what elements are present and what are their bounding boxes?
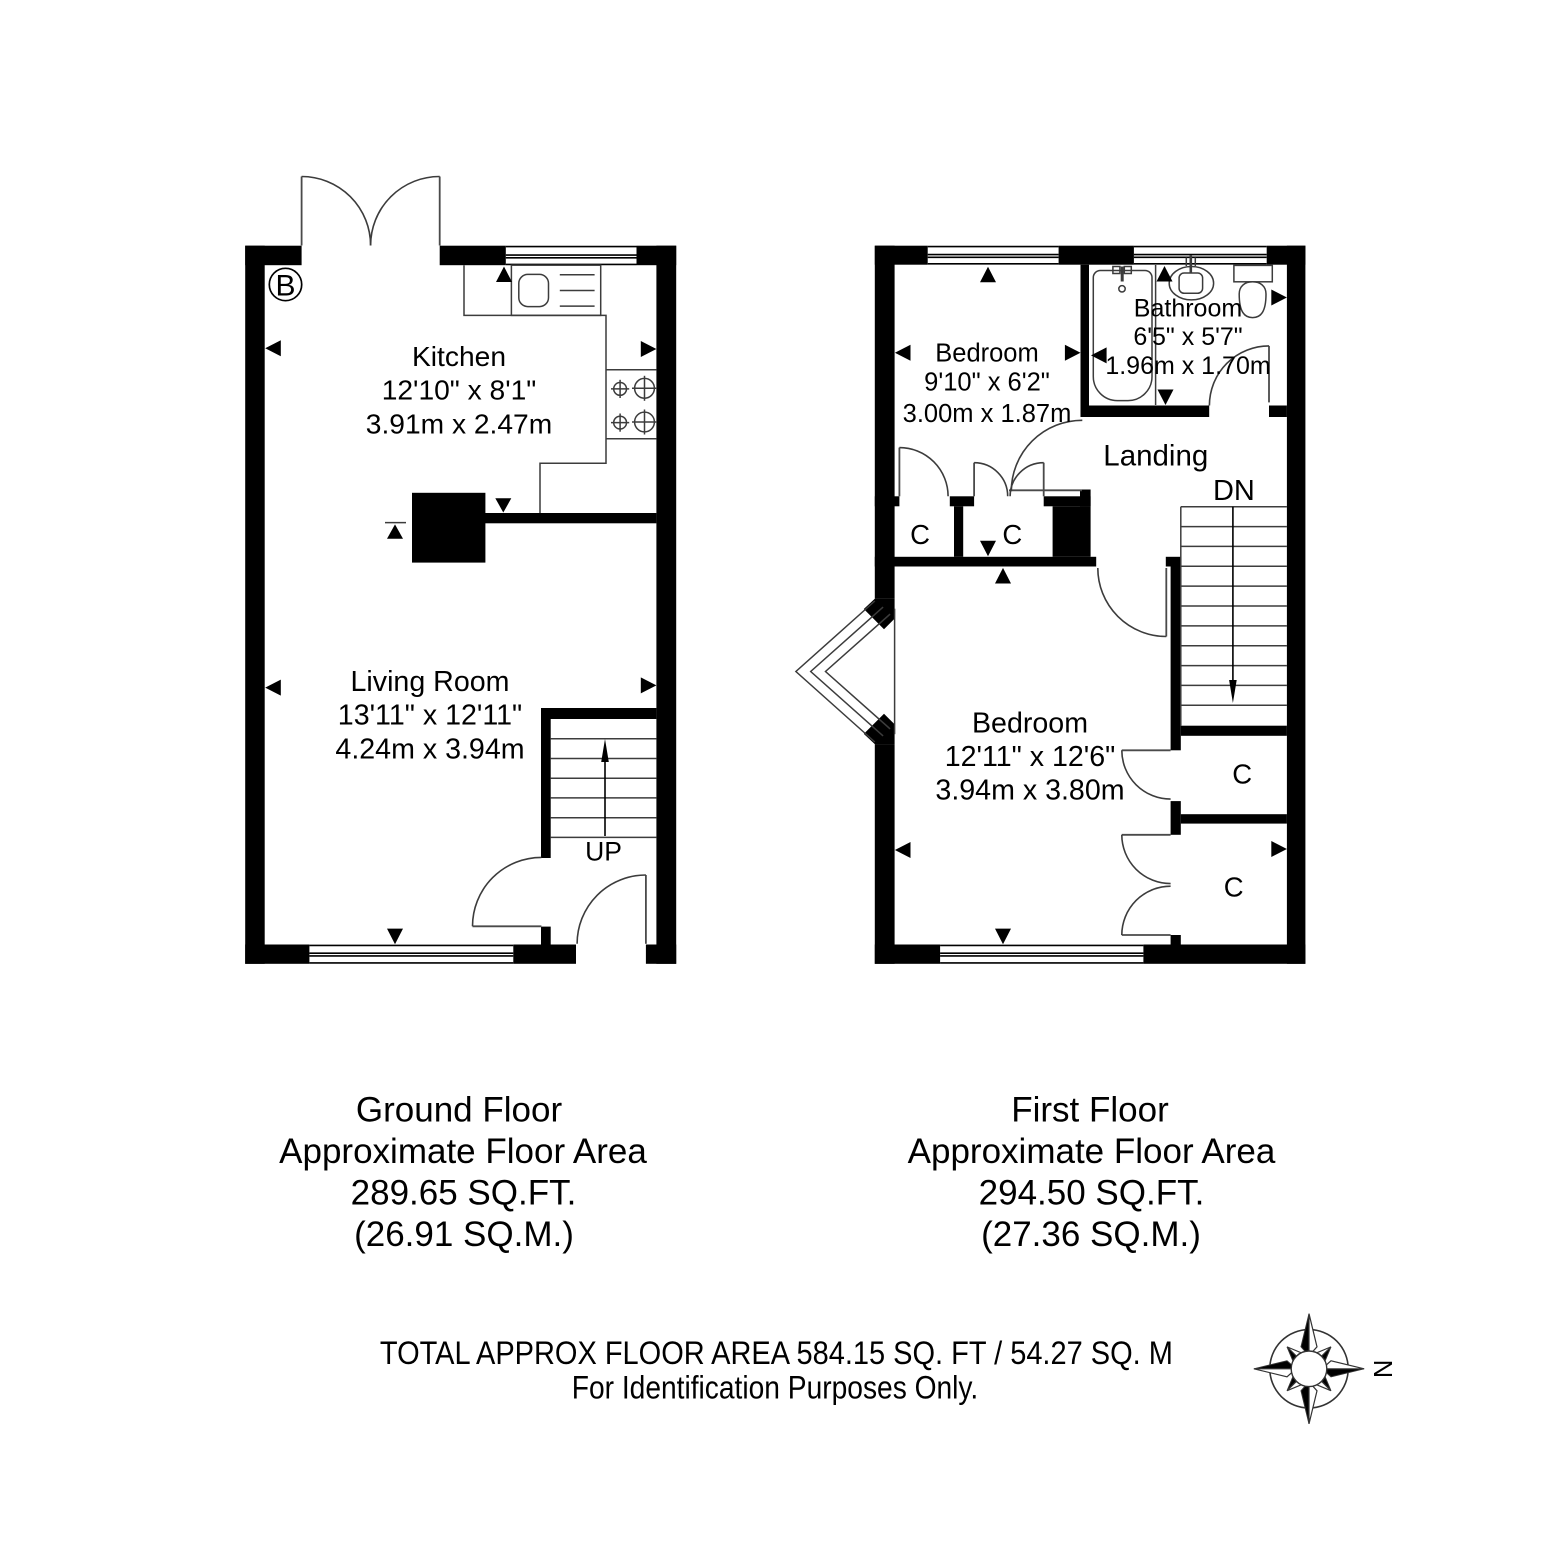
svg-text:294.50 SQ.FT.: 294.50 SQ.FT. (979, 1174, 1205, 1213)
svg-text:For Identification Purposes On: For Identification Purposes Only. (572, 1370, 979, 1406)
svg-text:Kitchen: Kitchen (412, 340, 506, 372)
svg-text:UP: UP (585, 836, 622, 866)
svg-text:3.00m x 1.87m: 3.00m x 1.87m (903, 400, 1072, 428)
svg-text:Ground Floor: Ground Floor (356, 1091, 563, 1130)
svg-text:B: B (275, 269, 295, 302)
svg-text:C: C (1224, 872, 1244, 903)
svg-text:13'11" x 12'11": 13'11" x 12'11" (338, 699, 522, 731)
svg-text:C: C (910, 519, 930, 550)
svg-text:C: C (1232, 758, 1252, 789)
svg-text:1.96m x 1.70m: 1.96m x 1.70m (1105, 352, 1270, 380)
svg-text:Bedroom: Bedroom (972, 707, 1088, 739)
svg-text:12'11" x 12'6": 12'11" x 12'6" (945, 741, 1116, 773)
svg-text:Landing: Landing (1103, 439, 1208, 472)
svg-text:Bathroom: Bathroom (1134, 295, 1242, 323)
svg-text:(26.91 SQ.M.): (26.91 SQ.M.) (354, 1215, 574, 1254)
svg-text:(27.36 SQ.M.): (27.36 SQ.M.) (981, 1215, 1201, 1254)
svg-text:DN: DN (1213, 475, 1255, 507)
svg-text:12'10" x 8'1": 12'10" x 8'1" (382, 374, 537, 406)
svg-text:Bedroom: Bedroom (935, 340, 1038, 368)
svg-text:4.24m x 3.94m: 4.24m x 3.94m (335, 734, 524, 766)
svg-text:Approximate Floor Area: Approximate Floor Area (908, 1132, 1276, 1171)
svg-text:Living Room: Living Room (351, 666, 510, 698)
svg-text:TOTAL APPROX FLOOR AREA 584.15: TOTAL APPROX FLOOR AREA 584.15 SQ. FT / … (380, 1335, 1173, 1371)
svg-text:3.91m x 2.47m: 3.91m x 2.47m (366, 408, 552, 440)
svg-text:C: C (1002, 519, 1022, 550)
svg-text:289.65 SQ.FT.: 289.65 SQ.FT. (351, 1174, 577, 1213)
svg-text:3.94m x 3.80m: 3.94m x 3.80m (935, 774, 1124, 806)
svg-text:Approximate Floor Area: Approximate Floor Area (279, 1132, 647, 1171)
svg-text:6'5" x 5'7": 6'5" x 5'7" (1133, 323, 1242, 351)
svg-text:First Floor: First Floor (1011, 1091, 1169, 1130)
svg-text:9'10" x 6'2": 9'10" x 6'2" (924, 368, 1050, 396)
svg-text:N: N (1368, 1360, 1396, 1378)
